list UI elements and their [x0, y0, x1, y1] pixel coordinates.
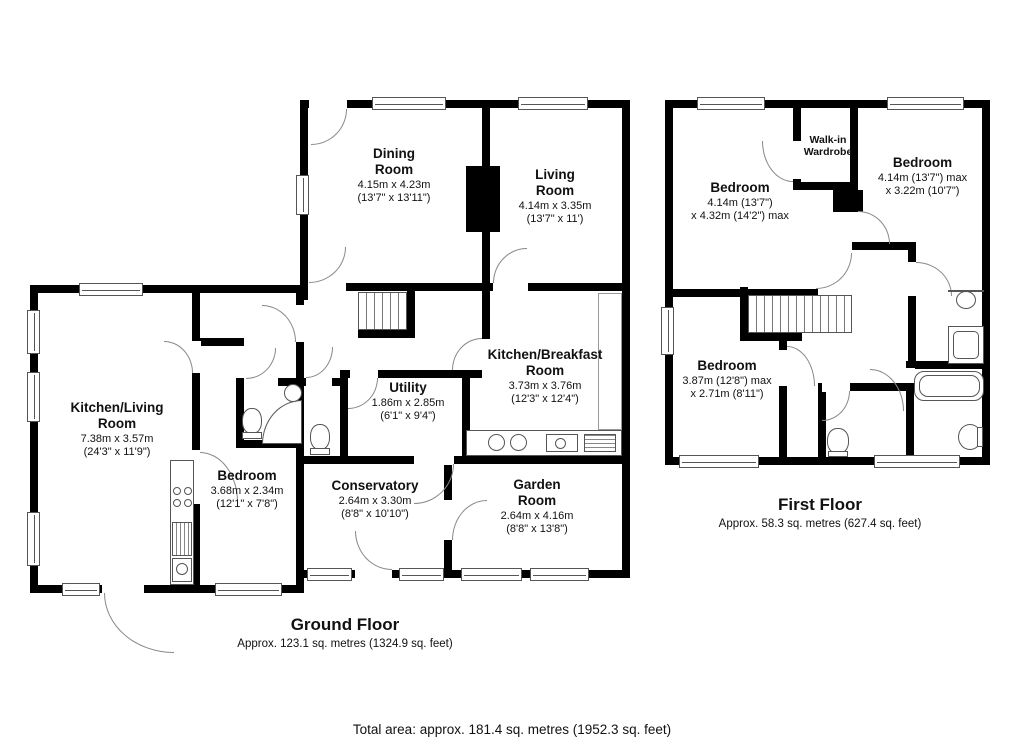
window [530, 568, 589, 581]
door-opening [355, 569, 392, 579]
door-opening [493, 282, 528, 292]
room-dims: 2.64m x 3.30m (8'8" x 10'10") [305, 495, 445, 521]
window [887, 97, 964, 110]
room-label-living: Living Room 4.14m x 3.35m (13'7" x 11') [480, 167, 630, 226]
hob-burner [510, 434, 527, 451]
window [79, 283, 143, 296]
window [372, 97, 446, 110]
window [27, 310, 40, 354]
door-opening [309, 99, 347, 109]
room-dims: 3.73m x 3.76m (12'3" x 12'4") [465, 380, 625, 406]
wall-segment [304, 283, 622, 291]
toilet [242, 408, 262, 434]
room-dims: 4.14m x 3.35m (13'7" x 11') [480, 200, 630, 226]
wall-segment [665, 100, 673, 465]
room-label-conservatory: Conservatory 2.64m x 3.30m (8'8" x 10'10… [305, 478, 445, 521]
door-opening [295, 305, 305, 342]
room-name: Kitchen/Living Room [37, 400, 197, 432]
door-swing [870, 369, 904, 411]
room-name: Living Room [480, 167, 630, 199]
door-swing [355, 531, 392, 570]
door-opening [306, 377, 332, 387]
window [661, 307, 674, 355]
toilet [310, 424, 330, 450]
appliance [172, 522, 192, 556]
toilet [977, 427, 983, 447]
wall-segment [740, 333, 802, 341]
window [874, 455, 960, 468]
wall-segment [196, 338, 244, 346]
bath [919, 375, 980, 397]
sink [555, 438, 566, 449]
room-dims: 3.87m (12'8") max x 2.71m (8'11") [647, 375, 807, 401]
window [697, 97, 765, 110]
stairs [358, 292, 407, 330]
room-label-kitchen-breakfast: Kitchen/Breakfast Room 3.73m x 3.76m (12… [465, 347, 625, 406]
door-swing [311, 109, 347, 145]
room-label-bedroom-ground: Bedroom 3.68m x 2.34m (12'1" x 7'8") [172, 468, 322, 511]
room-name: Utility [348, 380, 468, 396]
room-dims: 4.14m (13'7") max x 3.22m (10'7") [845, 172, 1000, 198]
toilet [242, 432, 262, 439]
drainer [584, 434, 616, 452]
window [62, 583, 100, 596]
room-label-bedroom-tr: Bedroom 4.14m (13'7") max x 3.22m (10'7"… [845, 155, 1000, 198]
window [296, 175, 309, 215]
floorplan: Dining Room 4.15m x 4.23m (13'7" x 13'11… [0, 0, 1024, 744]
stairs [748, 295, 852, 333]
door-swing [822, 391, 850, 421]
room-name: Conservatory [305, 478, 445, 494]
room-name: Bedroom [647, 358, 807, 374]
room-name: Kitchen/Breakfast Room [465, 347, 625, 379]
window [461, 568, 522, 581]
door-swing [858, 211, 890, 244]
floor-area: Approx. 58.3 sq. metres (627.4 sq. feet) [670, 518, 970, 532]
sink [176, 563, 188, 575]
total-area-label: Total area: approx. 181.4 sq. metres (19… [262, 722, 762, 737]
room-name: Garden Room [467, 477, 607, 509]
room-label-bedroom-tl: Bedroom 4.14m (13'7") x 4.32m (14'2") ma… [660, 180, 820, 223]
wall-segment [908, 296, 916, 361]
room-label-kitchen-living: Kitchen/Living Room 7.38m x 3.57m (24'3"… [37, 400, 197, 459]
floor-title: First Floor [670, 495, 970, 515]
room-dims: 2.64m x 4.16m (8'8" x 13'8") [467, 510, 607, 536]
room-dims: 3.68m x 2.34m (12'1" x 7'8") [172, 485, 322, 511]
room-name: Dining Room [314, 146, 474, 178]
room-label-bedroom-bl: Bedroom 3.87m (12'8") max x 2.71m (8'11"… [647, 358, 807, 401]
door-swing [262, 305, 296, 342]
ground-floor-title: Ground Floor Approx. 123.1 sq. metres (1… [195, 615, 495, 652]
room-name: Bedroom [845, 155, 1000, 171]
door-swing [309, 247, 346, 283]
window [215, 583, 282, 596]
window [518, 97, 588, 110]
window [27, 512, 40, 566]
floor-title: Ground Floor [195, 615, 495, 635]
room-label-garden: Garden Room 2.64m x 4.16m (8'8" x 13'8") [467, 477, 607, 536]
wall-segment [30, 285, 304, 293]
door-swing [916, 262, 952, 296]
room-label-dining: Dining Room 4.15m x 4.23m (13'7" x 13'11… [314, 146, 474, 205]
wall-segment [340, 370, 350, 378]
wall-segment [358, 330, 415, 338]
shower [262, 400, 302, 444]
room-dims: 1.86m x 2.85m (6'1" x 9'4") [348, 397, 468, 423]
floor-area: Approx. 123.1 sq. metres (1324.9 sq. fee… [195, 638, 495, 652]
door-opening [308, 282, 346, 292]
door-swing [816, 253, 852, 289]
door-swing [104, 593, 174, 653]
window [679, 455, 759, 468]
basin [956, 291, 976, 309]
room-name: Bedroom [172, 468, 322, 484]
hob-burner [488, 434, 505, 451]
window [399, 568, 444, 581]
door-swing [306, 347, 333, 378]
basin [284, 384, 302, 402]
window [307, 568, 352, 581]
shower [953, 331, 979, 359]
wall-segment [340, 370, 348, 464]
room-dims: 4.14m (13'7") x 4.32m (14'2") max [660, 197, 820, 223]
door-swing [246, 348, 276, 379]
door-swing [164, 341, 193, 373]
room-label-utility: Utility 1.86m x 2.85m (6'1" x 9'4") [348, 380, 468, 423]
wall-segment [906, 383, 914, 457]
toilet [310, 448, 330, 455]
door-swing [493, 248, 527, 283]
first-floor-title: First Floor Approx. 58.3 sq. metres (627… [670, 495, 970, 532]
toilet [828, 451, 848, 457]
wall-segment [482, 291, 490, 339]
room-name: Bedroom [660, 180, 820, 196]
wall-segment [908, 242, 916, 262]
room-dims: 4.15m x 4.23m (13'7" x 13'11") [314, 179, 474, 205]
wall-segment [304, 456, 630, 464]
room-dims: 7.38m x 3.57m (24'3" x 11'9") [37, 433, 197, 459]
